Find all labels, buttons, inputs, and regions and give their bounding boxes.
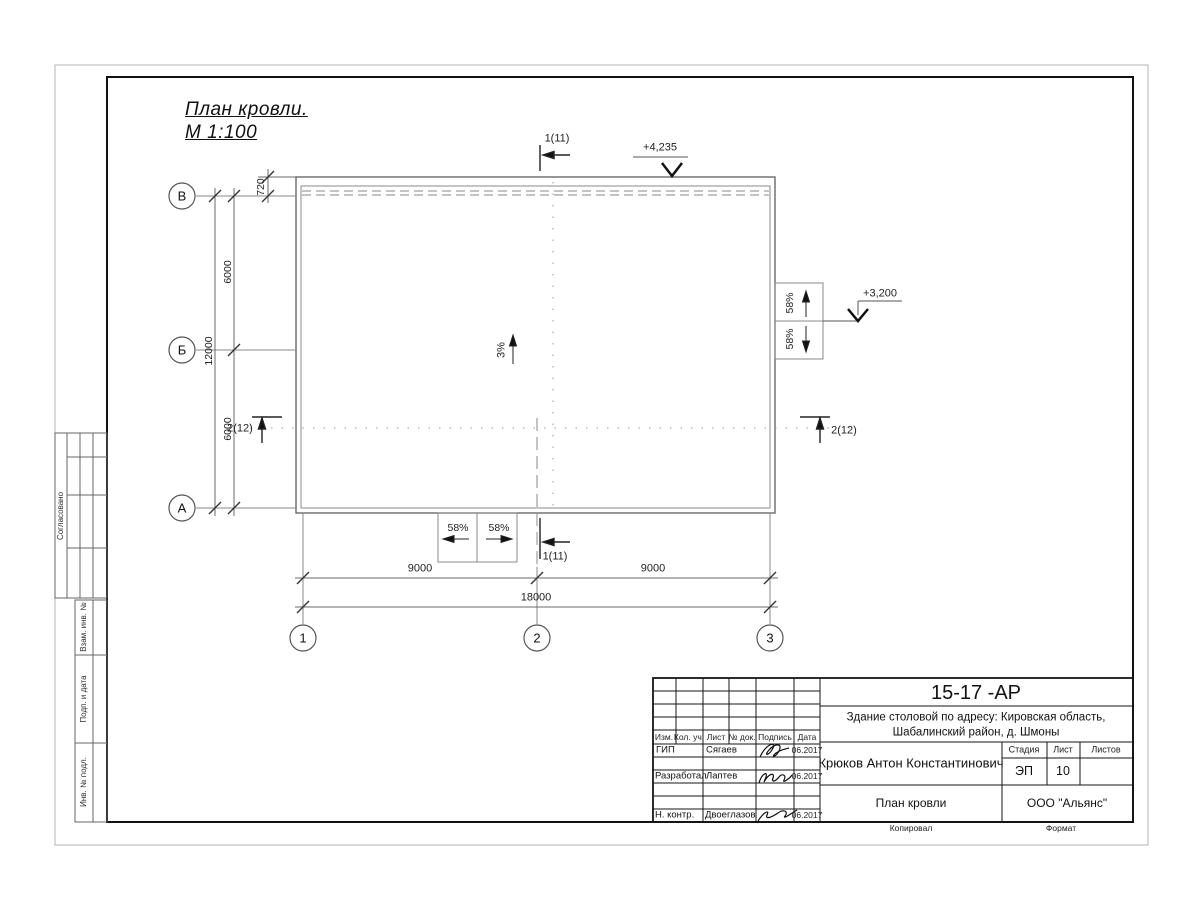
- side-label-podp: Подп. и дата: [80, 675, 88, 722]
- axis-label-2: 2: [533, 632, 540, 645]
- titleblock-header-izm: Изм.: [655, 733, 673, 742]
- dim-label-12000: 12000: [204, 336, 215, 365]
- signature-icon-razrabotal: [759, 774, 792, 783]
- titleblock-row-name: Сягаев: [706, 745, 737, 755]
- elev-top-arrow-icon: [662, 163, 682, 176]
- titleblock-company: ООО "Альянс": [1027, 797, 1107, 809]
- titleblock-row-role: Н. контр.: [655, 810, 694, 820]
- elevation-label-right: +3,200: [863, 289, 897, 300]
- titleblock-row-date: 06.2017: [792, 746, 823, 755]
- titleblock-header-kol: Кол. уч.: [674, 733, 704, 742]
- section2-right-arrowhead-icon: [817, 418, 824, 429]
- slope-label-bottom-left: 58%: [447, 523, 468, 534]
- roof-plan-outline: [296, 177, 775, 513]
- titleblock-header-ndok: № док.: [728, 733, 755, 742]
- signature-icon-gip: [760, 744, 789, 757]
- titleblock-header-list: Лист: [707, 733, 725, 742]
- axis-label-3: 3: [766, 632, 773, 645]
- dim-label-720: 720: [256, 178, 267, 196]
- titleblock-stage-value: ЭП: [1015, 765, 1033, 778]
- axis-lines: [196, 196, 770, 624]
- slope-arrow-icons: [443, 291, 810, 543]
- section1-top-arrowhead-icon: [543, 152, 554, 159]
- section-label-2-left: 2(12): [227, 424, 253, 435]
- side-label-vzam: Взам. инв. №: [80, 602, 88, 652]
- titleblock-row-role: Разработал: [655, 771, 707, 781]
- canopy-right: [775, 283, 823, 359]
- titleblock-doc-number: 15-17 -АР: [931, 683, 1021, 703]
- titleblock-row-name: Двоеглазов: [705, 810, 756, 820]
- axis-label-b: Б: [178, 344, 187, 357]
- titleblock-header-data: Дата: [798, 733, 817, 742]
- slope-bottom-right-arrowhead-icon: [501, 536, 512, 543]
- titleblock-author: Крюков Антон Константинович: [818, 757, 1003, 770]
- titleblock-listov-label: Листов: [1091, 746, 1120, 755]
- section2-left-arrowhead-icon: [259, 418, 266, 429]
- titleblock-project-line1: Здание столовой по адресу: Кировская обл…: [847, 712, 1106, 724]
- axis-label-1: 1: [299, 632, 306, 645]
- drawing-view-title: План кровли.: [185, 100, 308, 119]
- footer-format: Формат: [1046, 824, 1076, 833]
- titleblock-stage-label: Стадия: [1009, 746, 1040, 755]
- dim-label-9000-right: 9000: [641, 564, 665, 575]
- slope-label-right-top: 58%: [785, 292, 796, 313]
- roof-edge: [296, 177, 775, 513]
- titleblock-row-name: Лаптев: [706, 771, 737, 781]
- parapet-line: [301, 186, 770, 508]
- footer-kopiroval: Копировал: [890, 824, 933, 833]
- section-label-1-top: 1(11): [545, 134, 570, 145]
- elevation-label-top: +4,235: [643, 143, 677, 154]
- elevation-marks: [633, 157, 902, 321]
- axis-label-a: А: [178, 502, 187, 515]
- titleblock-list-value: 10: [1056, 765, 1070, 778]
- slope-main-arrowhead-icon: [510, 335, 517, 346]
- dim-label-18000: 18000: [521, 593, 552, 604]
- side-label-inv: Инв. № подл.: [80, 757, 88, 807]
- titleblock-row-role: ГИП: [656, 745, 675, 755]
- section1-bottom-arrowhead-icon: [543, 539, 554, 546]
- dim-ticks: [209, 171, 776, 613]
- section-label-2-right: 2(12): [831, 426, 857, 437]
- slope-bottom-left-arrowhead-icon: [443, 536, 454, 543]
- titleblock-drawing-title: План кровли: [876, 797, 947, 809]
- section-marks: [252, 145, 830, 559]
- drawing-sheet: План кровли. М 1:100 В Б А 1 2 3 720 600…: [0, 0, 1200, 900]
- slope-right-top-arrowhead-icon: [803, 291, 810, 302]
- drawing-view-scale: М 1:100: [185, 123, 257, 142]
- titleblock-list-label: Лист: [1053, 746, 1073, 755]
- titleblock-header-podpis: Подпись: [758, 733, 792, 742]
- titleblock-row-date: 06.2017: [792, 811, 823, 820]
- slope-right-bottom-arrowhead-icon: [803, 341, 810, 352]
- slope-label-right-bottom: 58%: [785, 328, 796, 349]
- dim-label-6000-top: 6000: [223, 260, 234, 283]
- axis-label-v: В: [178, 190, 187, 203]
- dimension-lines: [209, 169, 778, 613]
- section-label-1-bottom: 1(11): [543, 552, 568, 563]
- side-label-soglasovano: Согласовано: [57, 492, 65, 540]
- slope-label-main: 3%: [497, 342, 508, 358]
- titleblock-project-line2: Шабалинский район, д. Шмоны: [893, 727, 1060, 739]
- hidden-lines: [250, 182, 852, 567]
- slope-label-bottom-right: 58%: [488, 523, 509, 534]
- dim-label-9000-left: 9000: [408, 564, 432, 575]
- titleblock-row-date: 06.2017: [792, 772, 823, 781]
